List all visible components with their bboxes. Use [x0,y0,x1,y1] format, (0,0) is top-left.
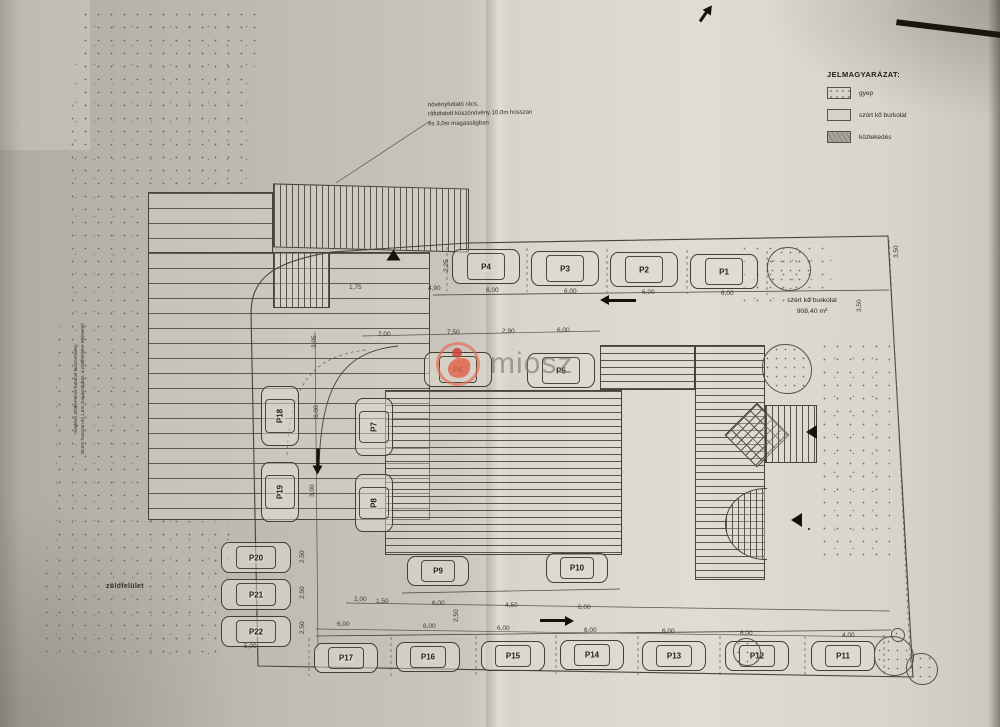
outbuilding [808,528,810,530]
parking-label: P11 [835,652,851,661]
building-main-west-wing [385,390,622,555]
legend-item: szórt kő burkolat [827,109,977,121]
dimension-label: 6,00 [662,628,675,635]
parking-spot-p8: P8 [355,474,393,532]
direction-arrow-icon [317,449,320,467]
legend-title: JELMAGYARÁZAT: [827,70,977,79]
parking-spot-p17: P17 [314,643,378,673]
dimension-label: 3,05 [311,335,318,348]
dimension-label: 6,00 [721,290,734,297]
parking-spot-p16: P16 [396,642,460,672]
parking-spot-p10: P10 [546,553,608,583]
note-plant-trellis: növényfuttató rács, ráfuttatott kúszónöv… [428,99,588,130]
dimension-label: 2,00 [378,331,391,338]
entrance-arrow-icon [791,513,802,527]
legend-swatch-gray [827,131,851,143]
parking-label: P10 [569,564,585,573]
building-existing-north [148,192,273,254]
dimension-label: 2,50 [299,586,306,599]
parking-spot-p4: P4 [452,249,520,284]
dimension-label: 1,75 [349,284,362,291]
dimension-label: 2,50 [299,621,306,634]
parking-spot-p21: P21 [221,579,291,610]
dimension-label: 6,00 [337,621,350,628]
parking-spot-p18: P18 [261,386,299,446]
legend-item-label: gyep [859,90,873,97]
dimension-label: 2,50 [453,609,460,622]
tree-icon [767,247,811,291]
dimension-label: 6,00 [740,630,753,637]
parking-label: P17 [338,654,354,663]
parking-spot-p13: P13 [642,641,706,671]
parking-label: P13 [666,652,682,661]
dimension-label: 2,25 [443,259,450,272]
paved-area-label: szórt kő burkolat 908,40 m² [760,296,864,318]
parking-label: P1 [718,267,730,276]
tree-icon [762,344,812,394]
parking-label: P7 [370,421,379,433]
watermark: miosz [436,342,573,386]
dimension-label: 3,50 [893,245,900,258]
legend-swatch-dots [827,87,851,99]
parking-label: P21 [248,590,264,599]
parking-label: P14 [584,651,600,660]
tree-icon [891,628,905,642]
note-fence-plants: meglévő drótkerítésre futtatott kúszónöv… [73,291,91,487]
dimension-label: 6,00 [557,327,570,334]
scan-sheet-edge-line [896,19,1000,39]
parking-spot-p3: P3 [531,251,599,286]
dimension-label: 6,00 [564,288,577,295]
dimension-label: 2,50 [299,550,306,563]
parking-label: P16 [420,653,436,662]
parking-spot-p14: P14 [560,640,624,670]
plant-trellis-wall [273,183,469,252]
dimension-label: 6,00 [486,287,499,294]
dimension-label: 4,50 [505,602,518,609]
dimension-label: 6,00 [584,627,597,634]
dimension-label: 6,00 [423,623,436,630]
parking-label: P18 [276,408,285,424]
parking-label: P19 [276,484,285,500]
dimension-label: 6,00 [432,600,445,607]
parking-spot-p11: P11 [811,641,875,671]
dimension-label: 6,00 [578,604,591,611]
tree-icon [906,653,938,685]
dimension-label: 4,00 [842,632,855,639]
dimension-label: 2,00 [354,596,367,603]
direction-arrow-icon [540,619,566,622]
watermark-logo-icon [431,337,485,391]
dimension-label: 5,00 [244,643,257,650]
parking-spot-p20: P20 [221,542,291,573]
parking-spot-p2: P2 [610,252,678,287]
legend-item: gyep [827,87,977,99]
watermark-text: miosz [490,347,573,381]
direction-arrow-icon [699,11,708,23]
dimension-label: 2,90 [502,328,515,335]
dimension-label: 1,50 [376,598,389,605]
dimension-label: 6,00 [497,625,510,632]
green-area-label: zöldfelület [106,583,144,590]
parking-label: P15 [505,652,521,661]
parking-spot-p19: P19 [261,462,299,522]
parking-label: P2 [638,265,650,274]
parking-spot-p15: P15 [481,641,545,671]
dimension-label: 7,50 [447,329,460,336]
dimension-label: 6,00 [313,405,320,418]
scan-corner-light [0,0,90,150]
parking-label: P9 [432,567,444,576]
legend: JELMAGYARÁZAT: gyepszórt kő burkolatközl… [827,70,977,153]
legend-item: közlekedés [827,131,977,143]
parking-spot-p9: P9 [407,556,469,586]
direction-arrow-icon [608,299,636,302]
legend-items: gyepszórt kő burkolatközlekedés [827,87,977,143]
site-plan-sheet: P4P3P2P1P6P5P7P8P18P19P20P21P22P9P10P17P… [0,0,1000,727]
scan-left-edge [0,0,22,727]
parking-label: P20 [248,553,264,562]
parking-label: P3 [559,264,571,273]
parking-spot-p1: P1 [690,254,758,289]
parking-label: P22 [248,627,264,636]
entrance-arrow-icon [387,250,401,261]
parking-spot-p7: P7 [355,398,393,456]
scan-right-edge [988,0,1000,727]
lawn-area-right [818,340,890,560]
plant-trellis-wall-small [273,252,330,308]
building-main-north-wing [600,345,695,390]
tree-icon [733,638,761,666]
parking-label: P8 [370,497,379,509]
entrance-arrow-icon [806,425,817,439]
legend-swatch-plain [827,109,851,121]
dimension-label: 6,00 [642,289,655,296]
legend-item-label: szórt kő burkolat [859,112,907,119]
dimension-label: 3,00 [309,484,316,497]
parking-label: P4 [480,262,492,271]
legend-item-label: közlekedés [859,134,892,141]
dimension-label: 4,90 [428,285,441,292]
